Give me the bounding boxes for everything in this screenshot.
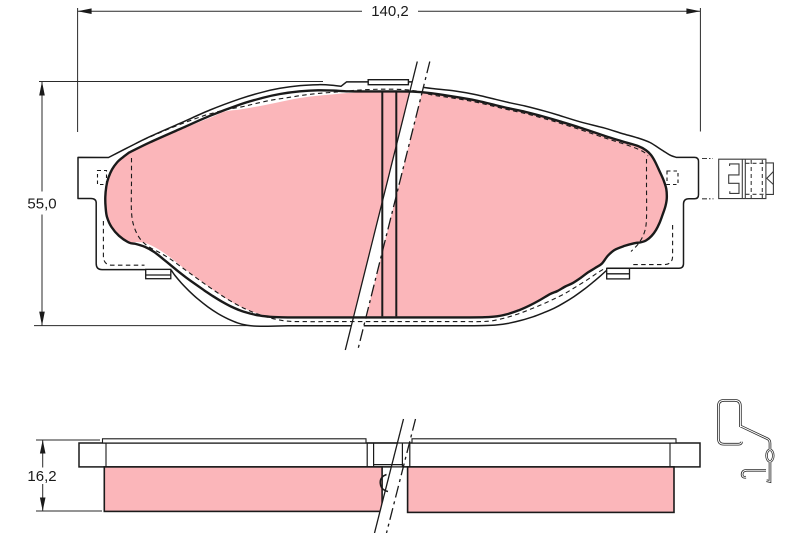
svg-text:140,2: 140,2	[371, 3, 409, 20]
svg-text:16,2: 16,2	[27, 468, 56, 485]
svg-text:55,0: 55,0	[27, 196, 56, 213]
